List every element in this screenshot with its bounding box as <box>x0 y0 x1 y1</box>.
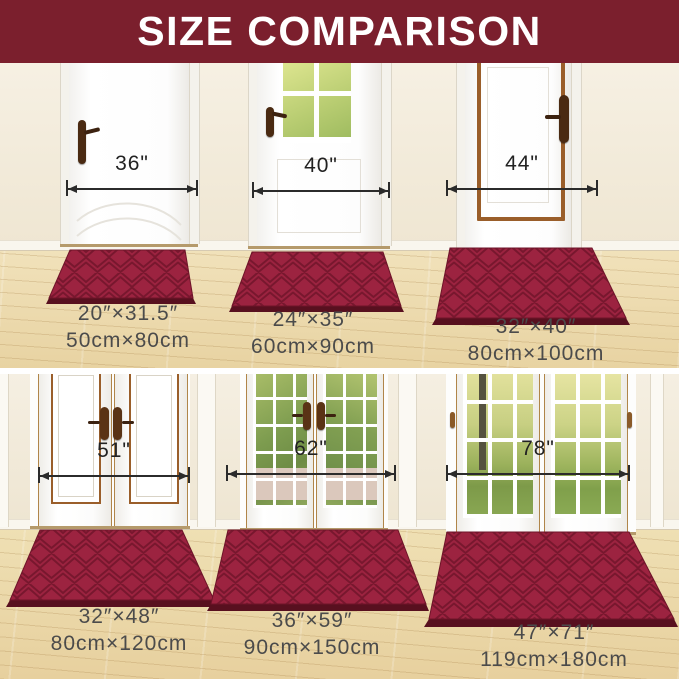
door-handle-icon <box>559 95 569 143</box>
mat-size-label-1: 20″×31.5″ 50cm×80cm <box>45 302 211 353</box>
size-comparison-infographic: SIZE COMPARISON <box>0 0 679 679</box>
threshold <box>456 248 580 251</box>
threshold <box>446 532 636 535</box>
dimension-arrow-78: 78" <box>446 464 630 482</box>
dimension-label: 62" <box>226 437 396 461</box>
dimension-label: 40" <box>252 154 390 178</box>
window-muntin <box>314 63 319 143</box>
dimension-arrow-40: 40" <box>252 181 390 199</box>
threshold <box>240 528 388 531</box>
dimension-arrow-36: 36" <box>66 179 198 197</box>
mat-size-label-6: 47″×71″ 119cm×180cm <box>462 621 646 672</box>
page-title: SIZE COMPARISON <box>137 8 541 55</box>
door-handle-icon <box>303 402 311 430</box>
door-handle-lever <box>84 127 100 135</box>
door-handle-icon <box>627 412 632 428</box>
door-handle-icon <box>100 407 109 440</box>
mat-size-label-2: 24″×35″ 60cm×90cm <box>230 308 396 359</box>
dimension-arrow-62: 62" <box>226 464 396 482</box>
dimension-arrow-44: 44" <box>446 179 598 197</box>
threshold <box>30 526 190 529</box>
pilaster <box>197 374 216 527</box>
door-handle-lever <box>88 421 100 424</box>
threshold <box>248 246 390 249</box>
dimension-label: 51" <box>38 439 190 463</box>
window-muntin <box>283 91 351 96</box>
dimension-label: 36" <box>66 152 198 176</box>
door-handle-icon <box>450 412 455 428</box>
window-sill <box>283 137 351 143</box>
door-window <box>283 63 351 143</box>
door-handle-lever <box>325 414 336 417</box>
door-handle-lever <box>292 414 303 417</box>
dimension-label: 44" <box>446 152 598 176</box>
door-handle-lever <box>545 115 561 119</box>
header-banner: SIZE COMPARISON <box>0 0 679 66</box>
dimension-label: 78" <box>446 437 630 461</box>
mat-size-label-5: 36″×59″ 90cm×150cm <box>228 609 396 660</box>
pilaster <box>0 374 9 527</box>
door-handle-icon <box>317 402 325 430</box>
dimension-arrow-51: 51" <box>38 466 190 484</box>
door-handle-icon <box>113 407 122 440</box>
mat-size-label-3: 32″×40″ 80cm×100cm <box>448 315 624 366</box>
top-row-scene: 36" 40" 44" <box>0 63 679 368</box>
threshold <box>60 244 198 247</box>
door-handle-lever <box>122 421 134 424</box>
mat-size-label-4: 32″×48″ 80cm×120cm <box>36 605 202 656</box>
pilaster <box>398 374 417 527</box>
pilaster <box>650 374 664 527</box>
bottom-row-scene: 51" 62" 78" <box>0 374 679 679</box>
